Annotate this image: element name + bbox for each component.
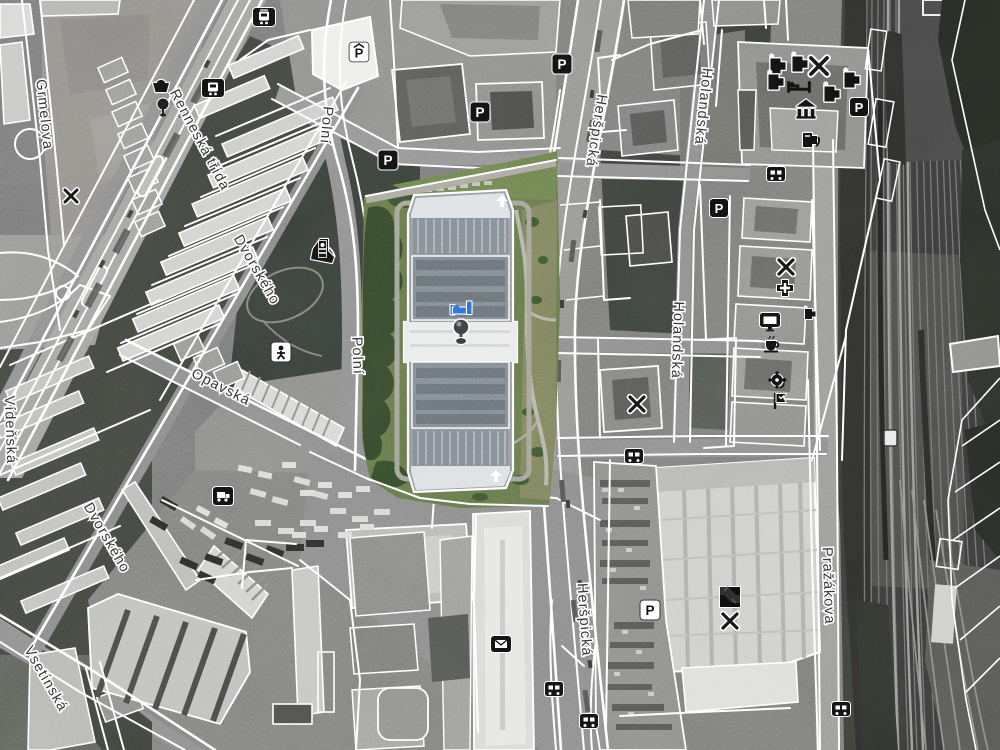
svg-text:Vídeňská: Vídeňská <box>1 395 19 464</box>
svg-text:Pražákova: Pražákova <box>819 547 838 625</box>
svg-text:Holandská: Holandská <box>668 301 687 379</box>
svg-text:Polní: Polní <box>348 337 365 376</box>
svg-text:Polní: Polní <box>316 106 335 145</box>
